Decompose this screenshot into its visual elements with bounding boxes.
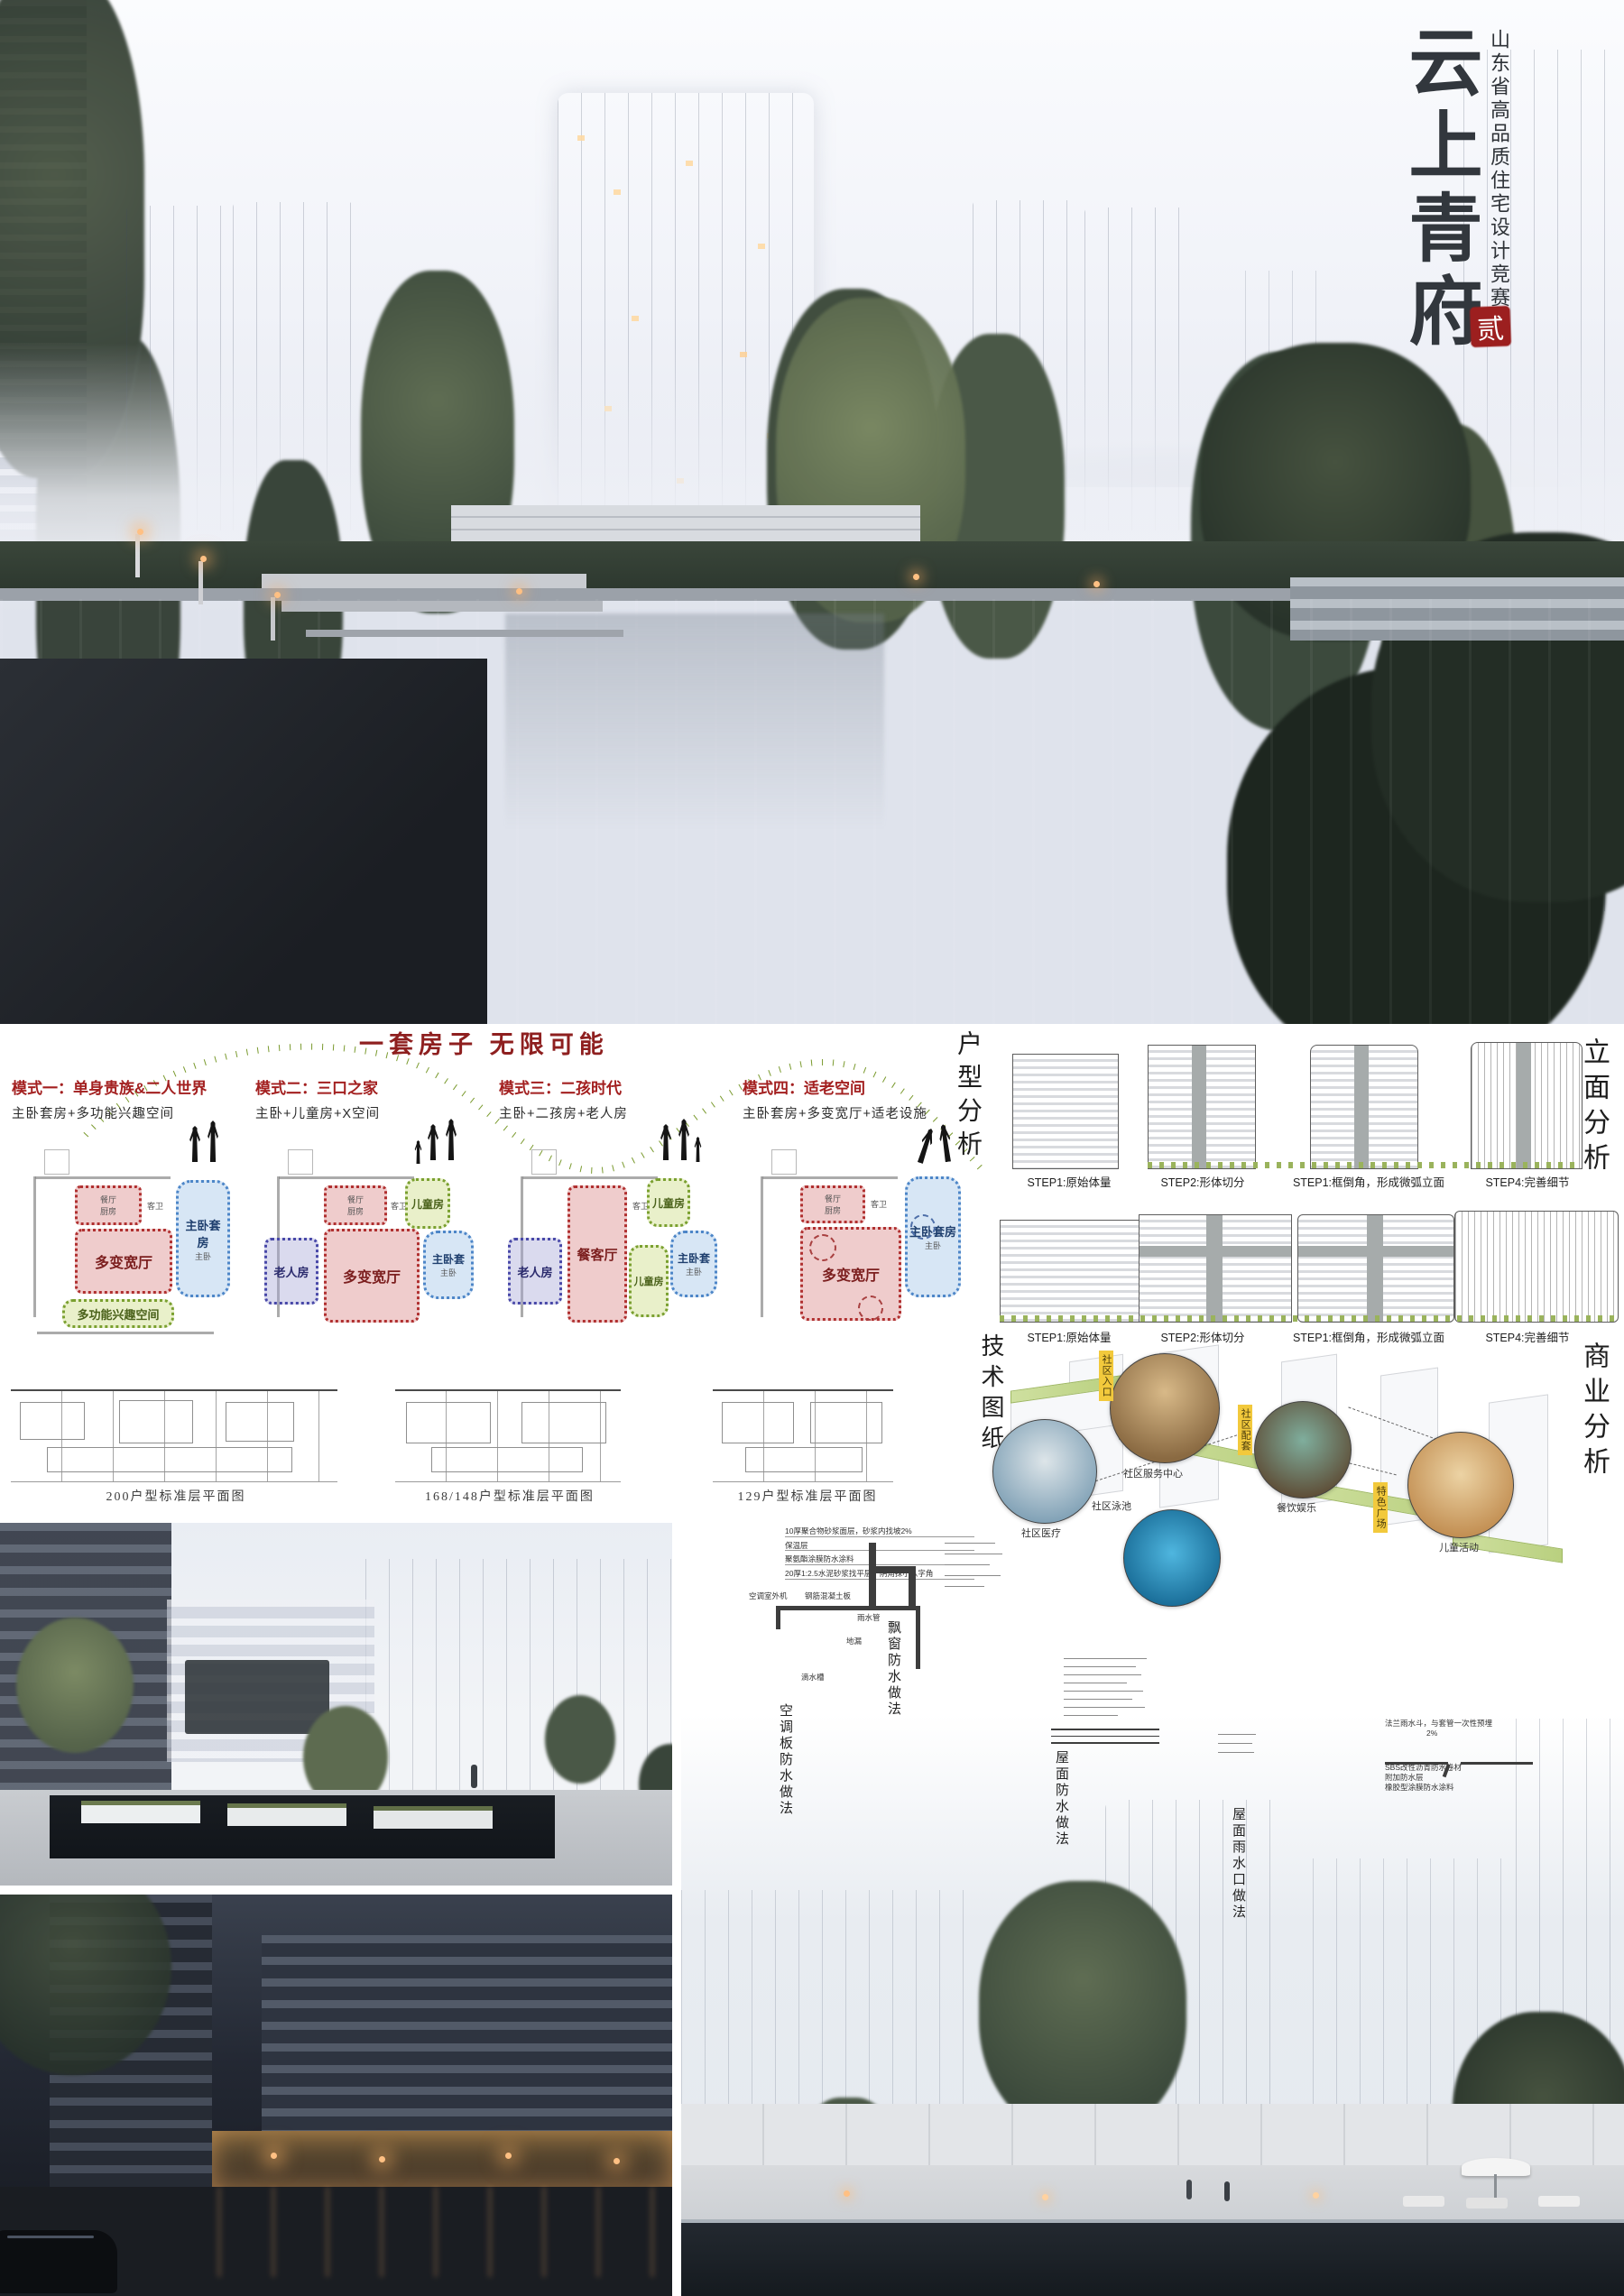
lit-storefront: [212, 2131, 672, 2187]
region-label: 儿童房: [652, 1195, 685, 1211]
plan-unit: [810, 1402, 882, 1443]
mode-block-1: 模式一：单身贵族&二人世界 主卧套房+多功能兴趣空间 餐厅 厨房 客卫 多变宽厅…: [12, 1075, 246, 1373]
step-caption: STEP2:形体切分: [1135, 1173, 1270, 1190]
room-label: 厨房: [347, 1205, 364, 1217]
night-commercial-photo: [0, 1895, 672, 2296]
typical-plan-drawing: [395, 1389, 621, 1482]
person-figure: [471, 1765, 477, 1788]
part-label: 空调室外机: [749, 1591, 788, 1601]
plan-unit: [119, 1400, 193, 1443]
tag-plaza: 特色广场: [1373, 1482, 1388, 1533]
water-reflection: [505, 613, 884, 884]
plan-unit: [521, 1402, 606, 1443]
spot-photo-kids: [1407, 1432, 1514, 1538]
detail-line: [869, 1543, 876, 1606]
illegible-note: [1064, 1666, 1136, 1667]
floor-plan-3: 老人房 餐客厅 客卫 儿童房 儿童房 主卧套 主卧: [499, 1144, 726, 1371]
spot-photo-community-center: [1110, 1353, 1220, 1463]
plan-region: 多功能兴趣空间: [62, 1299, 174, 1328]
mode-title: 模式三：二孩时代: [499, 1075, 734, 1098]
region-label: 多变宽厅: [822, 1263, 880, 1285]
step-caption: STEP2:形体切分: [1135, 1328, 1270, 1345]
plan-region-kitchen-dining: 餐厅 厨房: [800, 1185, 865, 1223]
core-bar: [1206, 1215, 1223, 1322]
room-label: 餐厅: [100, 1194, 116, 1205]
region-label: 餐客厅: [577, 1245, 617, 1264]
region-label: 主卧套: [678, 1250, 710, 1266]
part-label: 滴水槽: [801, 1673, 825, 1683]
illegible-note: [945, 1554, 1002, 1554]
detail-line: [1385, 1762, 1448, 1765]
step-caption: STEP1:框倒角，形成微弧立面: [1274, 1173, 1463, 1190]
car-roof-highlight: [7, 2236, 94, 2238]
accessibility-circle: [809, 1234, 836, 1261]
region-label: 多变宽厅: [95, 1250, 152, 1272]
plan-region: 餐客厅: [567, 1185, 627, 1323]
room-label: 厨房: [825, 1204, 841, 1216]
tree-cluster: [16, 1618, 134, 1753]
spot-photo-dining: [1254, 1401, 1352, 1498]
plan-wall: [762, 1176, 898, 1179]
courtyard-photo: [0, 1523, 672, 1886]
room-label: 主卧: [195, 1250, 211, 1262]
detail-title-ac: 空调板防水做法: [776, 1703, 795, 1817]
roof-layer-line: [1051, 1742, 1159, 1744]
plan-region: 主卧套 主卧: [423, 1231, 474, 1299]
bay-window-detail: [862, 1534, 1024, 1617]
mode-formula: 主卧套房+多功能兴趣空间: [12, 1103, 246, 1122]
seal-character: 贰: [1476, 306, 1505, 346]
building-mass: [681, 1890, 970, 2120]
illegible-note: [945, 1575, 1001, 1576]
spot-caption: 社区医疗: [1021, 1526, 1061, 1540]
room-label: 客卫: [871, 1198, 887, 1210]
accessibility-circle: [858, 1296, 883, 1321]
unit-analysis-label: 户型分析: [949, 1030, 985, 1164]
roof-detail: [1051, 1658, 1159, 1748]
title-block: 云上青府 山东省高品质住宅设计竞赛 贰: [1404, 16, 1530, 404]
illegible-note: [1218, 1752, 1254, 1753]
step-caption: STEP1:原始体量: [992, 1173, 1146, 1190]
massing-step-diagram: [1000, 1220, 1144, 1323]
roof-layer-line: [1051, 1736, 1159, 1737]
region-label: 儿童房: [411, 1196, 444, 1212]
foreground-pavement: [0, 659, 487, 1024]
floor-plan-1: 餐厅 厨房 客卫 多变宽厅 主卧套房 主卧 多功能兴趣空间: [12, 1144, 239, 1371]
plan-wall: [33, 1176, 36, 1317]
plan-region: 儿童房: [629, 1245, 669, 1317]
plaza-lights: [844, 2190, 850, 2197]
lattice-screen: [185, 1660, 329, 1734]
region-label: 老人房: [517, 1263, 552, 1280]
illegible-note: [1064, 1683, 1127, 1683]
plan-wall: [35, 1176, 171, 1179]
massing-step-diagram: [1148, 1045, 1256, 1169]
plan-region: 老人房: [264, 1238, 318, 1305]
plan-unit: [722, 1402, 794, 1443]
massing-step-diagram: [1012, 1054, 1119, 1169]
step-caption: STEP1:框倒角，形成微弧立面: [1274, 1328, 1463, 1345]
stepping-terrace: [262, 574, 586, 588]
mode-block-4: 模式四：适老空间 主卧套房+多变宽厅+适老设施 餐厅 厨房 客卫 多变宽厅 主卧…: [743, 1075, 977, 1373]
part-label: 钢筋混凝土板: [805, 1591, 851, 1601]
illegible-note: [1064, 1715, 1118, 1716]
detail-title-baywindow: 飘窗防水做法: [884, 1620, 903, 1718]
seal-stamp: 贰: [1470, 306, 1511, 347]
spot-caption: 社区服务中心: [1123, 1466, 1183, 1480]
spot-caption: 社区泳池: [1092, 1498, 1131, 1513]
illegible-note: [1064, 1674, 1141, 1675]
plan-region: 老人房: [508, 1238, 562, 1305]
spot-caption: 餐饮娱乐: [1277, 1500, 1316, 1515]
street-trees: [1148, 1162, 1581, 1168]
room-label: 主卧: [686, 1266, 702, 1277]
lounge-furniture: [1403, 2196, 1444, 2207]
region-label: 主卧套: [432, 1251, 465, 1267]
illegible-note: [1064, 1658, 1147, 1659]
detail-line: [1461, 1762, 1533, 1765]
illegible-note: [1218, 1734, 1256, 1735]
detail-line: [909, 1566, 916, 1606]
plan-wall: [279, 1176, 414, 1179]
elevator-box: [531, 1149, 557, 1175]
room-label: 主卧: [925, 1240, 941, 1251]
plan-caption: 200户型标准层平面图: [72, 1487, 280, 1505]
room-label: 主卧: [440, 1267, 457, 1278]
detail-line: [776, 1606, 780, 1629]
plan-caption: 168/148户型标准层平面图: [388, 1487, 632, 1505]
planter-box: [227, 1803, 346, 1826]
podium-band: [681, 2104, 1624, 2165]
mode-formula: 主卧套房+多变宽厅+适老设施: [743, 1103, 977, 1122]
plan-unit: [406, 1402, 491, 1443]
mode-formula: 主卧+儿童房+X空间: [255, 1103, 490, 1122]
competition-board: 云上青府 山东省高品质住宅设计竞赛 贰 一套房子 无限可能 模式一：单身贵族&二…: [0, 0, 1624, 2296]
region-label: 儿童房: [634, 1274, 664, 1288]
mode-formula: 主卧+二孩房+老人房: [499, 1103, 734, 1122]
commercial-analysis-label: 商业分析: [1573, 1342, 1613, 1482]
step-caption: STEP1:原始体量: [992, 1328, 1146, 1345]
plan-region: 多变宽厅: [324, 1229, 420, 1323]
plan-region-kitchen-dining: 餐厅 厨房: [324, 1185, 387, 1225]
planter-box: [81, 1801, 200, 1823]
illegible-note: [1064, 1707, 1145, 1708]
commercial-axonometric: 社区服务中心 社区医疗 社区泳池 社区泳池 餐饮娱乐 儿童活动 社区入口 社区配…: [983, 1349, 1570, 1606]
core-bar: [1354, 1046, 1369, 1168]
elevator-box: [288, 1149, 313, 1175]
mode-title: 模式一：单身贵族&二人世界: [12, 1075, 246, 1098]
plan-unit: [226, 1402, 294, 1442]
floor-plan-4: 餐厅 厨房 客卫 多变宽厅 主卧套房 主卧: [743, 1144, 970, 1371]
detail-title-drain: 屋面雨水口做法: [1229, 1807, 1248, 1921]
room-label: 厨房: [100, 1205, 116, 1217]
room-label: 客卫: [147, 1200, 163, 1212]
plan-unit: [47, 1447, 292, 1472]
umbrella-pole: [1494, 2174, 1497, 2205]
typical-plan-drawing: [11, 1389, 337, 1482]
plan-region: 儿童房: [647, 1178, 690, 1227]
tag-amenities: 社区配套: [1238, 1405, 1252, 1455]
roof-drain-detail: 法兰雨水斗，与套管一次性预埋 2% SBS改性沥青防水卷材 附加防水层 橡胶型涂…: [1385, 1719, 1547, 1818]
spot-photo-clinic: [992, 1419, 1097, 1524]
roof-layer-line: [1051, 1729, 1159, 1730]
core-bar: [1517, 1043, 1531, 1168]
lit-windows: [577, 135, 585, 141]
note-line: 橡胶型涂膜防水涂料: [1385, 1783, 1547, 1793]
core-bar: [1298, 1246, 1453, 1257]
storefront-lights: [271, 2153, 277, 2159]
mode-block-3: 模式三：二孩时代 主卧+二孩房+老人房 老人房 餐客厅 客卫 儿童房 儿童房 主…: [499, 1075, 734, 1373]
elevator-box: [771, 1149, 797, 1175]
core-bar: [1367, 1215, 1383, 1322]
foreground-pool: [681, 2223, 1624, 2296]
street-reflection: [217, 2187, 668, 2277]
illegible-note: [945, 1564, 990, 1565]
illegible-note: [1064, 1691, 1143, 1692]
plan-region: 主卧套 主卧: [670, 1231, 717, 1297]
building-mass: [262, 1935, 672, 2138]
poster-subtitle: 山东省高品质住宅设计竞赛: [1489, 29, 1509, 310]
path-lights: [137, 529, 143, 535]
massing-step-diagram: [1310, 1045, 1418, 1169]
spot-caption: 儿童活动: [1439, 1540, 1479, 1554]
step-caption: STEP4:完善细节: [1469, 1328, 1586, 1345]
room-label: 餐厅: [825, 1193, 841, 1204]
plan-wall: [761, 1176, 763, 1317]
part-label: 地漏: [846, 1637, 862, 1646]
plan-unit: [431, 1447, 583, 1472]
hero-rendering-photo: 云上青府 山东省高品质住宅设计竞赛 贰: [0, 0, 1624, 1024]
street-trees: [1000, 1315, 1617, 1322]
note-line: 法兰雨水斗，与套管一次性预埋: [1385, 1719, 1547, 1729]
illegible-note: [945, 1586, 984, 1587]
floor-plan-2: 老人房 餐厅 厨房 客卫 多变宽厅 儿童房 主卧套 主卧: [255, 1144, 483, 1371]
illegible-note: [945, 1543, 995, 1544]
planter-box: [374, 1806, 493, 1829]
car-silhouette: [0, 2230, 117, 2293]
illegible-note: [1218, 1743, 1252, 1744]
spot-photo-pool: [1123, 1509, 1221, 1607]
detail-title-roof: 屋面防水做法: [1052, 1750, 1071, 1848]
person-figure: [1186, 2180, 1192, 2199]
mode-title: 模式四：适老空间: [743, 1075, 977, 1098]
massing-step-diagram: [1297, 1214, 1454, 1323]
core-bar: [1192, 1046, 1206, 1168]
plan-region-kitchen-dining: 餐厅 厨房: [75, 1185, 142, 1225]
region-label: 老人房: [273, 1263, 309, 1280]
note-line: 附加防水层: [1385, 1773, 1547, 1783]
region-label: 主卧套房: [180, 1216, 226, 1250]
massing-step-diagram: [1471, 1042, 1582, 1169]
plan-region: 主卧套房 主卧: [905, 1176, 961, 1297]
step-caption: STEP4:完善细节: [1469, 1173, 1586, 1190]
plan-region: 多变宽厅: [75, 1229, 172, 1294]
tree-cluster: [979, 1881, 1186, 2138]
plan-region: 儿童房: [405, 1178, 450, 1229]
region-label: 多功能兴趣空间: [77, 1305, 159, 1323]
illegible-note: [1064, 1699, 1132, 1700]
note-line: 2%: [1426, 1729, 1547, 1738]
building-mass: [365, 1559, 672, 1795]
mode-title: 模式二：三口之家: [255, 1075, 490, 1098]
plan-unit: [20, 1402, 85, 1440]
room-label: 餐厅: [347, 1194, 364, 1205]
plan-caption: 129户型标准层平面图: [713, 1487, 902, 1505]
mode-block-2: 模式二：三口之家 主卧+儿童房+X空间 老人房 餐厅 厨房 客卫 多变宽厅 儿童…: [255, 1075, 490, 1373]
plan-wall: [522, 1176, 658, 1179]
plan-unit: [745, 1447, 863, 1472]
tag-entrance: 社区入口: [1099, 1351, 1113, 1401]
elevator-box: [44, 1149, 69, 1175]
accessibility-circle: [910, 1214, 936, 1240]
poster-title: 云上青府: [1393, 23, 1483, 355]
region-label: 多变宽厅: [343, 1265, 401, 1286]
umbrella: [1462, 2158, 1530, 2176]
plan-wall: [37, 1332, 214, 1334]
plan-region: 主卧套房 主卧: [176, 1180, 230, 1297]
massing-step-diagram: [1454, 1211, 1619, 1323]
massing-step-diagram: [1139, 1214, 1292, 1323]
bollard-light: [135, 534, 140, 577]
typical-plan-drawing: [713, 1389, 893, 1482]
core-bar: [1140, 1246, 1291, 1257]
